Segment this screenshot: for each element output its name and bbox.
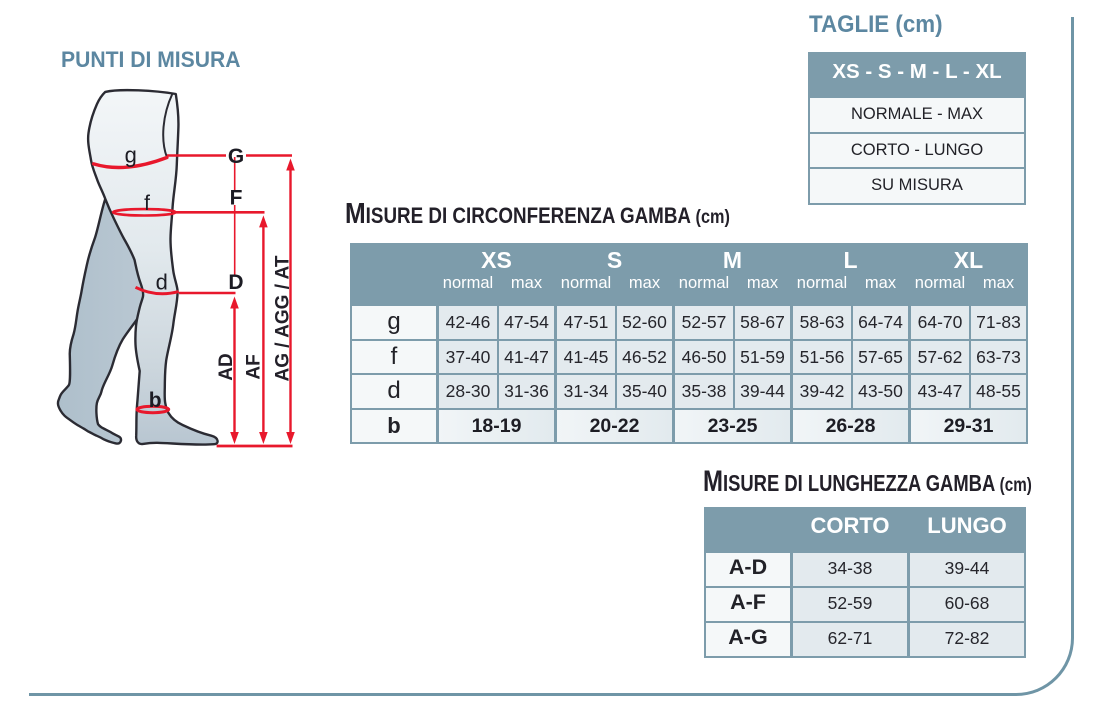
svg-text:F: F bbox=[230, 187, 243, 210]
svg-text:AD: AD bbox=[216, 353, 237, 380]
svg-text:f: f bbox=[144, 192, 150, 215]
svg-text:b: b bbox=[149, 389, 162, 412]
svg-text:AG / AGG / AT: AG / AGG / AT bbox=[273, 255, 294, 381]
svg-text:d: d bbox=[156, 270, 168, 295]
svg-text:g: g bbox=[125, 143, 137, 168]
svg-text:D: D bbox=[228, 271, 243, 294]
svg-text:AF: AF bbox=[244, 354, 265, 379]
svg-text:G: G bbox=[228, 145, 244, 168]
